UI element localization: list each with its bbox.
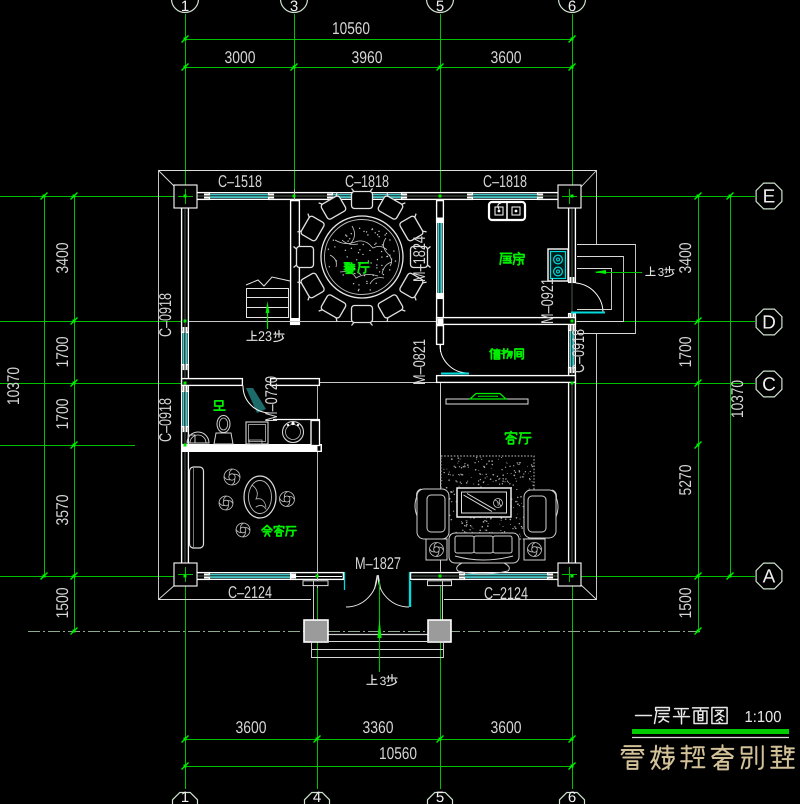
svg-text:C–0918: C–0918 [156, 398, 175, 442]
svg-text:3600: 3600 [490, 718, 521, 737]
svg-text:A: A [763, 566, 776, 587]
svg-text:C–2124: C–2124 [484, 584, 528, 603]
svg-text:1500: 1500 [676, 588, 695, 619]
svg-text:1: 1 [181, 0, 189, 15]
svg-text:C–1818: C–1818 [483, 172, 527, 191]
svg-text:3400: 3400 [676, 243, 695, 274]
svg-text:E: E [763, 186, 776, 207]
svg-text:3: 3 [658, 267, 664, 279]
svg-text:C–1818: C–1818 [345, 172, 389, 191]
svg-text:3360: 3360 [362, 718, 393, 737]
svg-text:5: 5 [436, 789, 444, 804]
svg-text:3000: 3000 [224, 48, 255, 67]
svg-text:1: 1 [181, 789, 189, 804]
svg-text:C–1518: C–1518 [218, 172, 262, 191]
svg-text:M–0720: M–0720 [262, 376, 281, 422]
svg-text:M–0921: M–0921 [538, 278, 557, 324]
svg-text:M–0821: M–0821 [410, 339, 429, 385]
svg-text:3570: 3570 [53, 495, 72, 526]
svg-text:3: 3 [380, 674, 387, 688]
svg-text:5: 5 [436, 0, 444, 15]
svg-text:D: D [762, 312, 776, 333]
svg-text:5270: 5270 [676, 465, 695, 496]
svg-text:C: C [762, 374, 776, 395]
svg-text:1:100: 1:100 [744, 709, 781, 726]
svg-text:4: 4 [313, 789, 321, 804]
svg-text:3400: 3400 [53, 243, 72, 274]
svg-text:6: 6 [568, 789, 576, 804]
svg-text:C–2124: C–2124 [228, 583, 272, 602]
svg-text:1700: 1700 [676, 337, 695, 368]
svg-text:1700: 1700 [53, 337, 72, 368]
svg-text:3960: 3960 [351, 48, 382, 67]
svg-text:M–1827: M–1827 [355, 554, 401, 573]
svg-text:M–1824: M–1824 [410, 236, 429, 282]
svg-text:1700: 1700 [53, 399, 72, 430]
svg-text:3: 3 [290, 0, 298, 15]
svg-text:10560: 10560 [379, 744, 417, 763]
svg-text:23: 23 [258, 328, 272, 344]
svg-text:10370: 10370 [4, 367, 23, 405]
svg-text:C–0918: C–0918 [569, 329, 588, 373]
svg-text:10560: 10560 [332, 19, 370, 38]
svg-text:10370: 10370 [728, 380, 747, 418]
svg-text:3600: 3600 [490, 48, 521, 67]
svg-text:1500: 1500 [53, 588, 72, 619]
svg-text:6: 6 [568, 0, 576, 15]
svg-text:3600: 3600 [235, 718, 266, 737]
svg-text:C–0918: C–0918 [156, 293, 175, 337]
